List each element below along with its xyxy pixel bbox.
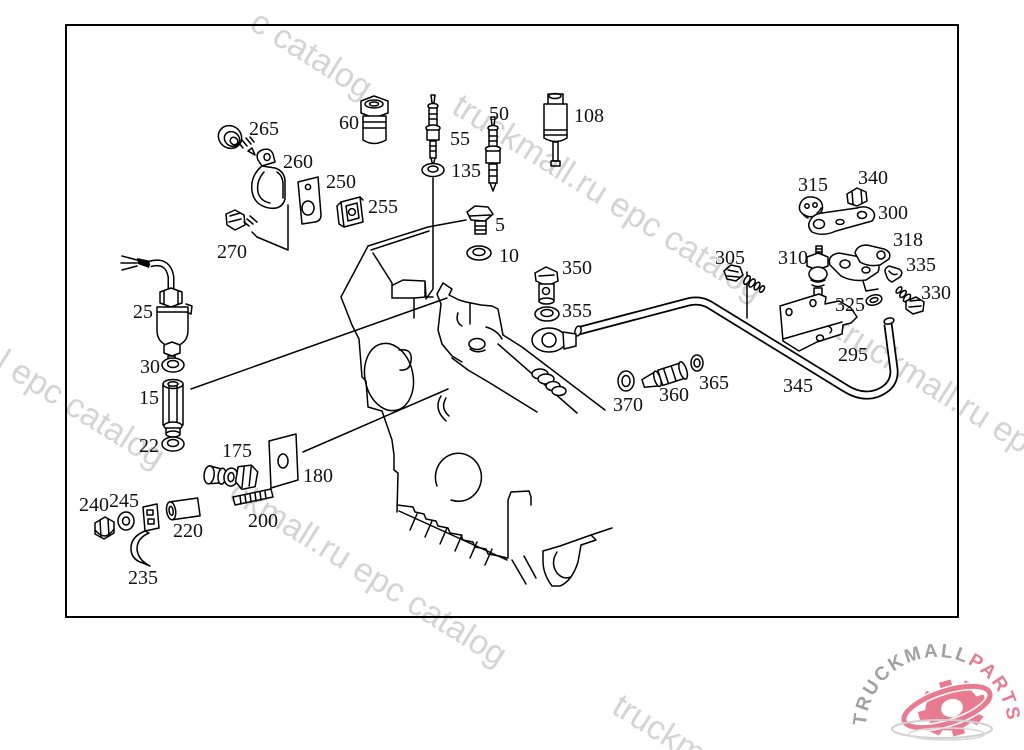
- part-label-335: 335: [906, 254, 936, 276]
- part-270-bolt: [226, 210, 257, 237]
- part-label-350: 350: [562, 257, 592, 279]
- part-label-260: 260: [283, 151, 313, 173]
- part-label-108: 108: [574, 105, 604, 127]
- part-335-clip: [885, 266, 902, 282]
- part-245-washer: [118, 512, 134, 530]
- part-340-nut: [847, 188, 867, 206]
- part-240-nut: [95, 517, 114, 539]
- part-label-135: 135: [451, 160, 481, 182]
- part-325-seal-ring: [865, 293, 883, 307]
- part-labels: 265 260 250 255 270 60 55 135 50 108 5 1…: [79, 103, 951, 589]
- part-label-265: 265: [249, 118, 279, 140]
- part-318-lever-assembly: [829, 245, 889, 291]
- part-label-22: 22: [139, 435, 159, 457]
- part-label-305: 305: [715, 247, 745, 269]
- part-label-345: 345: [783, 375, 813, 397]
- part-label-365: 365: [699, 372, 729, 394]
- part-label-240: 240: [79, 494, 109, 516]
- part-label-300: 300: [878, 202, 908, 224]
- part-label-318: 318: [893, 229, 923, 251]
- part-15-extension-fitting: [163, 380, 183, 438]
- part-label-55: 55: [450, 128, 470, 150]
- part-label-25: 25: [133, 301, 153, 323]
- part-235-clamp-strap: [131, 504, 159, 566]
- part-label-180: 180: [303, 465, 333, 487]
- watermark-text: c catalog: [244, 3, 380, 107]
- engine-block-drawing: [341, 178, 612, 586]
- part-60-sensor: [361, 96, 388, 144]
- part-330-bolt: [895, 286, 924, 314]
- part-250-bracket: [298, 177, 321, 224]
- part-350-banjo-bolt: [535, 267, 558, 304]
- part-260-clamp: [252, 149, 285, 208]
- watermark-text: ckmall.ru epc catalog: [223, 473, 514, 674]
- part-175-fitting: [203, 460, 258, 490]
- part-25-pressure-sensor: [121, 256, 192, 362]
- part-5-screw-plug: [467, 206, 493, 234]
- part-220-sleeve: [165, 498, 200, 520]
- part-label-325: 325: [835, 294, 865, 316]
- part-label-235: 235: [128, 567, 158, 589]
- part-label-245: 245: [109, 490, 139, 512]
- part-22-seal-ring: [162, 437, 184, 451]
- part-30-seal-ring: [162, 358, 184, 372]
- part-55-glow-plug: [426, 95, 440, 166]
- part-50-glow-plug: [486, 117, 501, 191]
- part-255-clip: [337, 197, 363, 227]
- part-label-30: 30: [140, 356, 160, 378]
- part-label-250: 250: [326, 171, 356, 193]
- part-label-330: 330: [921, 282, 951, 304]
- part-135-seal-ring: [422, 164, 444, 177]
- parts-diagram-canvas: c catalog truckmall.ru epc catalog l epc…: [0, 0, 1024, 750]
- part-180-plate: [269, 434, 298, 488]
- part-10-seal-ring: [467, 246, 491, 260]
- part-label-5: 5: [495, 214, 505, 236]
- part-370-seal-ring: [618, 371, 634, 391]
- part-label-60: 60: [339, 112, 359, 134]
- part-label-200: 200: [248, 510, 278, 532]
- part-label-220: 220: [173, 520, 203, 542]
- part-label-15: 15: [139, 387, 159, 409]
- part-365-seal-ring: [691, 355, 703, 371]
- part-label-340: 340: [858, 167, 888, 189]
- part-label-270: 270: [217, 241, 247, 263]
- part-355-seal-ring: [535, 307, 559, 321]
- part-label-355: 355: [562, 300, 592, 322]
- part-label-315: 315: [798, 174, 828, 196]
- part-label-255: 255: [368, 196, 398, 218]
- truckmall-logo: TRUCKMALLPARTS: [850, 641, 1024, 744]
- part-label-360: 360: [659, 384, 689, 406]
- part-label-310: 310: [778, 247, 808, 269]
- part-label-175: 175: [222, 440, 252, 462]
- part-label-10: 10: [499, 245, 519, 267]
- part-label-295: 295: [838, 344, 868, 366]
- banjo-fitting: [532, 328, 576, 352]
- part-310-valve: [807, 246, 828, 302]
- part-label-50: 50: [489, 103, 509, 125]
- watermark-text: truckmall: [606, 687, 741, 750]
- part-label-370: 370: [613, 394, 643, 416]
